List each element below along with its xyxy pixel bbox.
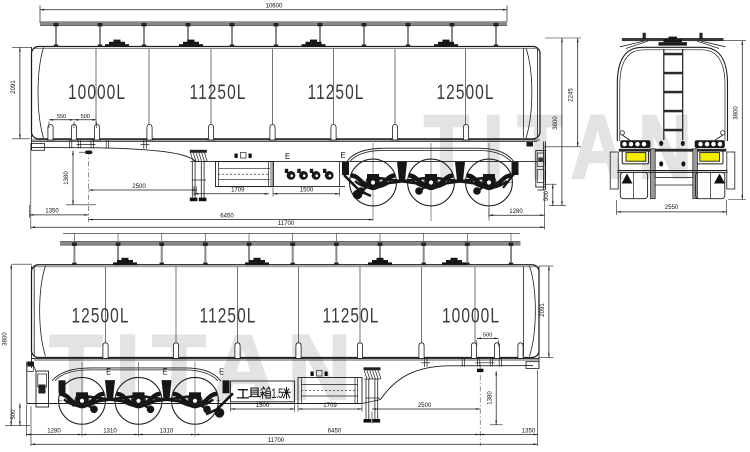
svg-text:500: 500 [483, 332, 492, 338]
svg-text:2500: 2500 [418, 403, 432, 409]
svg-text:11250L: 11250L [308, 79, 365, 103]
svg-text:1709: 1709 [231, 188, 245, 194]
svg-text:10600: 10600 [266, 4, 283, 10]
svg-text:12500L: 12500L [436, 79, 494, 103]
svg-text:11250L: 11250L [190, 79, 247, 103]
svg-text:1500: 1500 [300, 188, 314, 194]
svg-text:3800: 3800 [553, 116, 559, 130]
svg-text:E: E [163, 367, 168, 376]
svg-text:550: 550 [57, 114, 66, 120]
svg-text:1280: 1280 [509, 209, 523, 215]
svg-text:1.5: 1.5 [271, 385, 283, 401]
svg-text:500: 500 [11, 409, 17, 420]
svg-text:2550: 2550 [665, 205, 679, 211]
svg-text:2091: 2091 [540, 303, 546, 317]
svg-text:1350: 1350 [522, 428, 536, 434]
svg-text:10000L: 10000L [442, 303, 500, 327]
svg-text:11250L: 11250L [323, 303, 380, 327]
svg-text:6450: 6450 [220, 213, 234, 219]
svg-text:E: E [106, 367, 111, 376]
svg-text:6450: 6450 [328, 428, 342, 434]
svg-text:2245: 2245 [569, 88, 575, 102]
svg-text:2500: 2500 [132, 184, 146, 190]
svg-text:11700: 11700 [278, 221, 295, 227]
svg-text:2091: 2091 [11, 80, 17, 94]
svg-text:3800: 3800 [2, 332, 8, 346]
svg-text:1310: 1310 [103, 428, 117, 434]
svg-text:12500L: 12500L [71, 303, 129, 327]
svg-text:1500: 1500 [256, 403, 270, 409]
svg-text:E: E [219, 367, 224, 376]
svg-text:1350: 1350 [45, 209, 59, 215]
svg-text:E: E [340, 151, 346, 160]
svg-text:E: E [285, 152, 291, 161]
svg-text:1280: 1280 [47, 428, 61, 434]
svg-text:3800: 3800 [733, 106, 739, 120]
svg-text:1380: 1380 [487, 391, 493, 405]
svg-text:1709: 1709 [323, 403, 337, 409]
svg-text:11700: 11700 [268, 438, 285, 444]
svg-text:1310: 1310 [160, 428, 174, 434]
svg-text:11250L: 11250L [200, 303, 257, 327]
svg-text:1380: 1380 [64, 171, 70, 185]
svg-text:500: 500 [81, 114, 90, 120]
svg-text:10000L: 10000L [68, 79, 126, 103]
